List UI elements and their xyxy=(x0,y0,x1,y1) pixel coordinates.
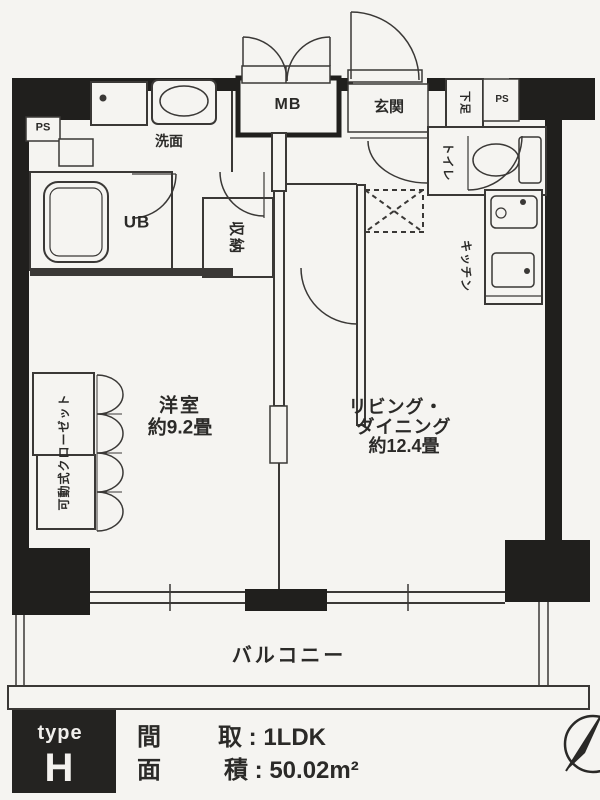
room-label-western-room-size: 約9.2畳 xyxy=(148,419,212,438)
sliding-door xyxy=(270,406,287,463)
living-door-arc xyxy=(301,268,357,324)
stove-knob-dot xyxy=(524,268,530,274)
toilet-tank-icon xyxy=(519,137,541,183)
room-label-ps-left: PS xyxy=(36,123,51,134)
room-label-kitchen: キッチン xyxy=(460,240,472,292)
bathtub-inner xyxy=(50,188,102,256)
room-label-toilet: トイレ xyxy=(442,142,454,181)
kitchen-sink-icon xyxy=(491,196,537,228)
entrance-sill xyxy=(348,70,422,82)
legend-menseki-char: 面 xyxy=(137,759,161,783)
partition-wall xyxy=(274,191,284,406)
room-label-living-line1: リビング・ xyxy=(349,398,444,416)
balcony-slab xyxy=(8,686,589,709)
refrigerator-space-icon xyxy=(365,190,423,232)
room-label-mb: MB xyxy=(275,97,302,113)
legend-layout-value: 取 : 1LDK xyxy=(218,726,326,750)
pillar-bottom-left xyxy=(12,548,90,615)
room-label-ps-right: PS xyxy=(495,95,508,105)
sink-faucet-dot xyxy=(520,199,526,205)
room-label-western-room: 洋室 xyxy=(159,397,201,416)
genkan-door-arc xyxy=(368,141,427,183)
wall-window-center xyxy=(245,589,327,611)
room-label-movable-closet: 可動式クローゼット xyxy=(58,393,70,510)
room-label-unit-bath: UB xyxy=(124,214,151,231)
wall-top-right-a xyxy=(427,78,447,91)
legend-type-box: type H xyxy=(12,710,116,793)
legend-madori-char: 間 xyxy=(137,726,161,750)
room-label-living-line2: ダイニング xyxy=(357,418,452,436)
pipe-space-left-box2 xyxy=(59,139,93,166)
legend-type-value: H xyxy=(12,746,106,791)
room-label-genkan: 玄関 xyxy=(374,100,404,115)
wall-right xyxy=(545,78,562,549)
room-label-balcony: バルコニー xyxy=(232,646,347,666)
wall-ub-bottom xyxy=(30,268,233,276)
wall-left xyxy=(12,78,29,550)
room-label-living-size: 約12.4畳 xyxy=(368,437,439,455)
room-label-shoe-box: 下足 xyxy=(459,91,470,115)
room-label-washroom: 洗面 xyxy=(155,134,183,148)
compass-north-icon xyxy=(565,711,600,772)
floorplan-canvas: MB 玄関 下足 PS PS 洗面 UB 収納 トイレ キッチン 可動式クローゼ… xyxy=(0,0,600,800)
pillar-bottom-right xyxy=(505,540,590,602)
room-label-storage: 収納 xyxy=(229,221,244,255)
balcony-rails xyxy=(16,602,548,686)
legend-type-label: type xyxy=(12,722,108,745)
floorplan-drawing xyxy=(0,0,600,800)
duct-wall xyxy=(272,133,286,191)
legend-area-value: 積 : 50.02m² xyxy=(224,759,359,783)
washer-tap-dot xyxy=(100,95,107,102)
corridor-wall xyxy=(357,185,365,425)
closet-accordion-icon xyxy=(97,375,123,531)
toilet-icon xyxy=(473,144,519,176)
washer-icon xyxy=(91,82,147,125)
compass-needle-line xyxy=(566,711,600,771)
